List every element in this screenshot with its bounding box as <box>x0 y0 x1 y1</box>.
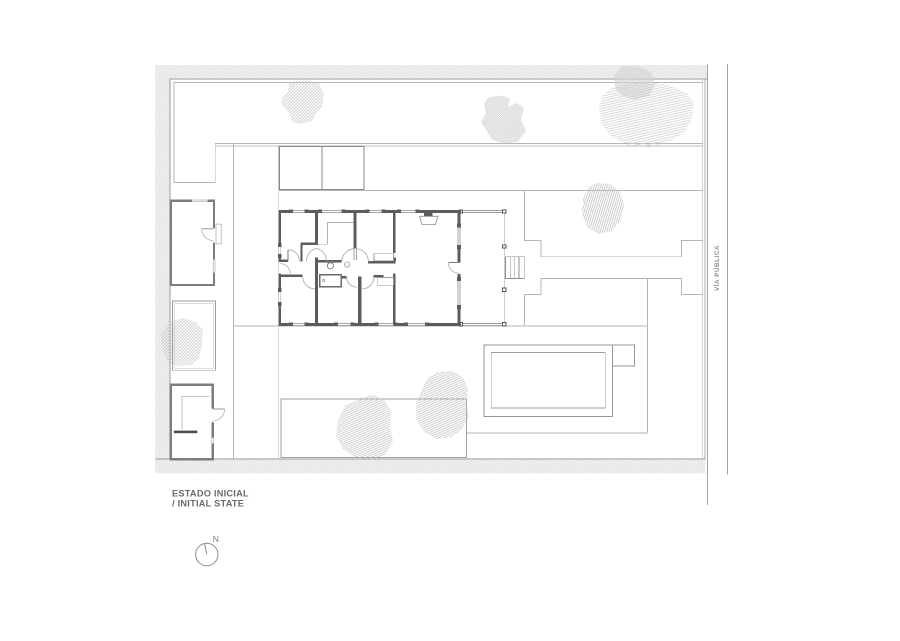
svg-text:ESTADO INICIAL: ESTADO INICIAL <box>172 489 249 499</box>
svg-text:VÍA PÚBLICA: VÍA PÚBLICA <box>712 245 721 291</box>
svg-text:N: N <box>213 534 219 544</box>
svg-text:/ INITIAL STATE: / INITIAL STATE <box>172 499 244 509</box>
